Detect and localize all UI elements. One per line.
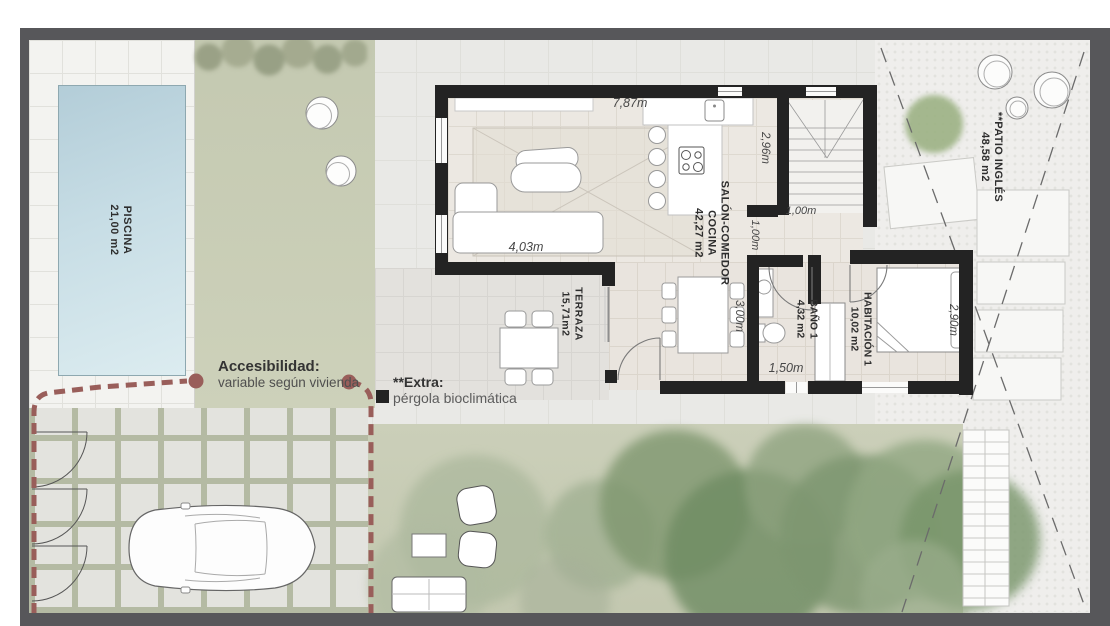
label-piscina: PISCINA 21,00 m2 bbox=[107, 204, 133, 255]
label-salon-comedor: SALÓN-COMEDOR COCINA 42,27 m2 bbox=[692, 181, 731, 286]
dim-stairs-depth: 2,96m bbox=[759, 132, 771, 164]
room-area: 15,71m2 bbox=[560, 287, 573, 341]
room-area: 21,00 m2 bbox=[107, 204, 120, 255]
extra-note: **Extra: pérgola bioclimática bbox=[393, 374, 517, 406]
room-name: BAÑO 1 bbox=[807, 299, 820, 339]
plot-frame-bottom bbox=[20, 613, 1110, 626]
dim-comedor-depth: 3,00m bbox=[733, 300, 745, 332]
dim-bano-width: 1,50m bbox=[769, 361, 804, 375]
driveway bbox=[29, 408, 368, 613]
label-bano: BAÑO 1 4,32 m2 bbox=[795, 299, 820, 339]
dim-sofa-width: 4,03m bbox=[509, 240, 544, 254]
side-garden bbox=[195, 40, 375, 408]
top-margin bbox=[0, 0, 1110, 28]
label-terraza: TERRAZA 15,71m2 bbox=[560, 287, 585, 341]
accessibility-subtitle: variable según vivienda bbox=[218, 375, 359, 390]
room-name: PISCINA bbox=[120, 204, 133, 255]
patio-bush bbox=[905, 95, 963, 153]
room-area: 48,58 m2 bbox=[978, 112, 991, 202]
room-name: HABITACIÓN 1 bbox=[861, 292, 874, 366]
extra-subtitle: pérgola bioclimática bbox=[393, 390, 517, 406]
dim-habitacion-depth: 2,90m bbox=[947, 304, 959, 336]
hedge bbox=[195, 34, 367, 76]
room-name: SALÓN-COMEDOR bbox=[718, 181, 731, 286]
accessibility-title: Accesibilidad: bbox=[218, 358, 359, 375]
plot-frame-top bbox=[20, 28, 1110, 40]
label-patio-ingles: **PATIO INGLÉS 48,58 m2 bbox=[978, 112, 1004, 202]
floor-plan: PISCINA 21,00 m2 SALÓN-COMEDOR COCINA 42… bbox=[0, 0, 1110, 626]
extra-title: **Extra: bbox=[393, 374, 517, 390]
dim-stairs-width: 1,00m bbox=[786, 205, 817, 217]
room-name: TERRAZA bbox=[572, 287, 585, 341]
accessibility-note: Accesibilidad: variable según vivienda bbox=[218, 358, 359, 390]
room-name: **PATIO INGLÉS bbox=[991, 112, 1004, 202]
plot-frame-right bbox=[1090, 28, 1110, 626]
label-habitacion: HABITACIÓN 1 10,02 m2 bbox=[849, 292, 874, 366]
room-name-2: COCINA bbox=[705, 181, 718, 286]
room-area: 42,27 m2 bbox=[692, 181, 705, 286]
left-margin bbox=[0, 0, 20, 626]
dim-salon-width: 7,87m bbox=[613, 96, 648, 110]
plot-frame-left bbox=[20, 28, 29, 626]
room-area: 4,32 m2 bbox=[795, 299, 808, 339]
room-area: 10,02 m2 bbox=[849, 292, 862, 366]
dim-hall-width: 1,00m bbox=[749, 220, 761, 251]
